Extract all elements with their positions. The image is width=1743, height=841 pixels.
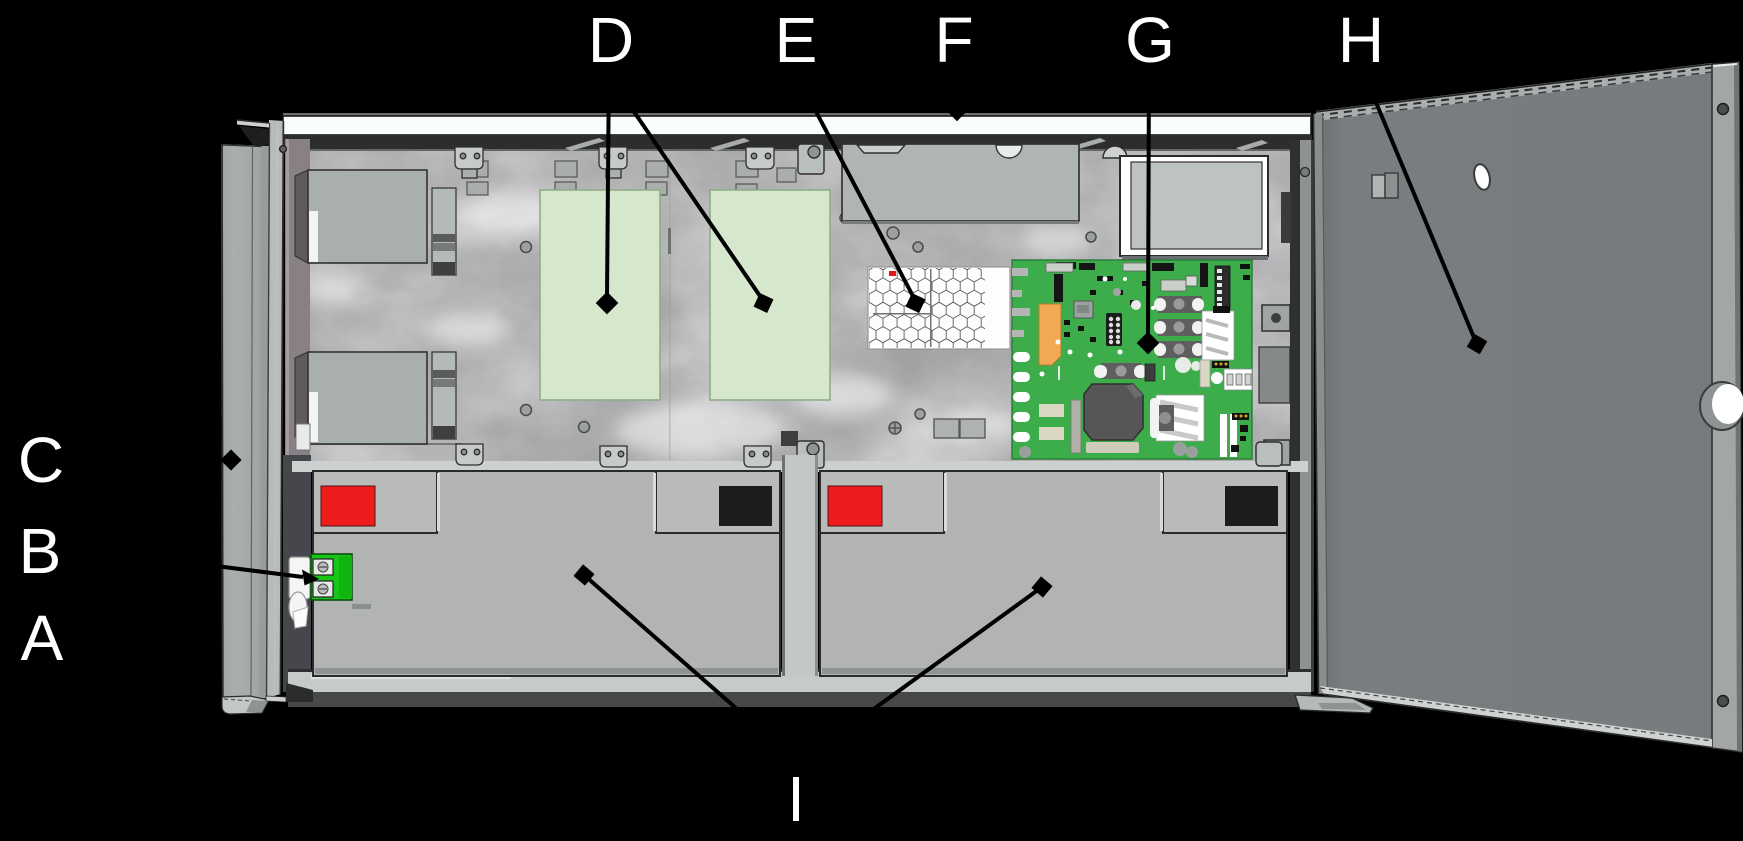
svg-text:C: C bbox=[18, 424, 64, 496]
svg-text:G: G bbox=[1125, 4, 1175, 76]
svg-text:H: H bbox=[1338, 4, 1384, 76]
svg-text:A: A bbox=[21, 602, 64, 674]
svg-text:B: B bbox=[19, 515, 62, 587]
svg-text:I: I bbox=[787, 763, 805, 835]
svg-text:D: D bbox=[588, 4, 634, 76]
svg-text:F: F bbox=[934, 4, 973, 76]
svg-text:E: E bbox=[775, 4, 818, 76]
